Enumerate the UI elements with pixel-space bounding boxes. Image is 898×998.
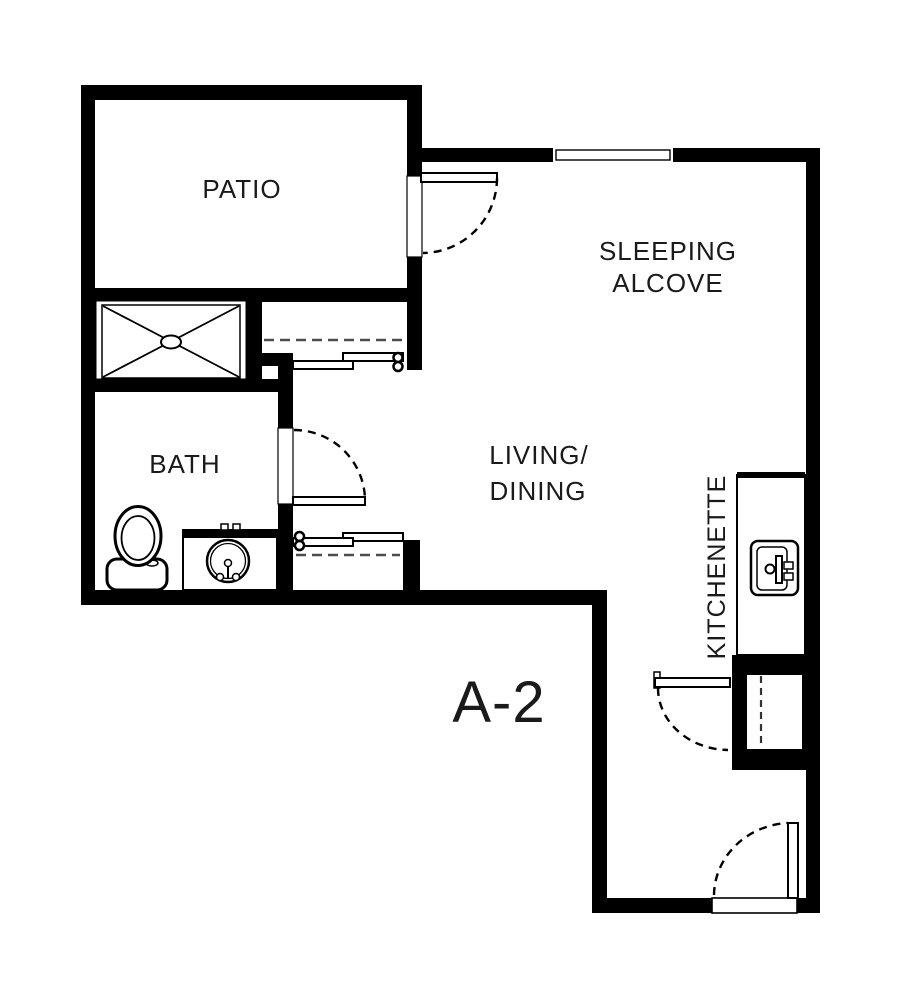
door-knob	[295, 532, 304, 541]
door-leaf	[421, 173, 497, 182]
patio-door	[407, 173, 497, 257]
toilet	[107, 507, 167, 591]
shower	[95, 300, 247, 380]
door-swing-arc	[658, 688, 728, 750]
patio-label: PATIO	[202, 174, 281, 204]
vanity-tap	[217, 574, 224, 581]
door-swing-arc	[294, 430, 365, 499]
living-dining-label-line2: DINING	[490, 476, 587, 506]
door-opening	[407, 176, 422, 257]
wall-alcove-top-left	[407, 148, 553, 162]
door-swing-arc	[714, 823, 788, 895]
entry-door	[712, 823, 798, 913]
kitchenette-label: KITCHENETTE	[703, 475, 731, 660]
door-knob	[295, 541, 304, 550]
counter-front-edge	[737, 472, 805, 478]
vanity-drain	[225, 560, 232, 567]
door-leaf	[655, 678, 730, 687]
window	[553, 148, 673, 162]
kitchen-faucet-handle	[784, 573, 793, 580]
entry-threshold	[712, 898, 797, 913]
door-knob	[394, 362, 403, 371]
vanity-faucet-handle	[233, 524, 240, 530]
entry-closet-box	[746, 674, 803, 750]
wall-exterior-left	[81, 85, 95, 605]
kitchen-faucet	[776, 556, 782, 583]
entry-closet	[746, 674, 803, 750]
bypass-door-panel	[293, 361, 353, 369]
door-leaf	[788, 823, 798, 898]
kitchenette-counter	[737, 472, 805, 655]
bath-door	[278, 428, 365, 505]
wall-notch	[262, 366, 278, 379]
wall-bath-door-bottom	[278, 503, 293, 590]
vestibule-door	[654, 672, 730, 750]
vanity-tap	[233, 574, 240, 581]
unit-label: A-2	[452, 670, 545, 735]
wall-patio-right-upper	[407, 85, 422, 177]
vanity	[183, 524, 277, 590]
door-knob	[394, 353, 403, 362]
bath-label: BATH	[149, 449, 220, 479]
wall-bath-door-top	[278, 392, 293, 429]
wall-closet-b-right	[403, 540, 420, 590]
door-leaf	[293, 497, 365, 505]
wall-patio-top	[81, 85, 422, 100]
sleeping-alcove-label-line1: SLEEPING	[599, 236, 737, 266]
kitchen-sink-drain	[766, 565, 775, 574]
shower-drain	[161, 336, 181, 349]
vanity-faucet-handle	[221, 524, 228, 530]
floor-plan-drawing: PATIO SLEEPING ALCOVE BATH LIVING/ DININ…	[0, 0, 898, 998]
wall-vestibule-left	[592, 590, 607, 913]
wall-closet-a-right	[407, 288, 422, 370]
wall-exterior-right	[806, 148, 820, 913]
sleeping-alcove-label-line2: ALCOVE	[612, 268, 724, 298]
vanity-counter-edge	[183, 530, 277, 538]
door-opening	[278, 428, 293, 504]
labels: PATIO SLEEPING ALCOVE BATH LIVING/ DININ…	[149, 174, 737, 735]
wall-alcove-top-right	[673, 148, 820, 162]
door-swing-arc	[423, 178, 497, 253]
wall-bottom-left	[81, 590, 607, 605]
floor-plan-page: PATIO SLEEPING ALCOVE BATH LIVING/ DININ…	[0, 0, 898, 998]
living-dining-label-line1: LIVING/	[489, 440, 588, 470]
closet-lower	[293, 532, 403, 555]
kitchen-faucet-handle	[784, 562, 793, 569]
